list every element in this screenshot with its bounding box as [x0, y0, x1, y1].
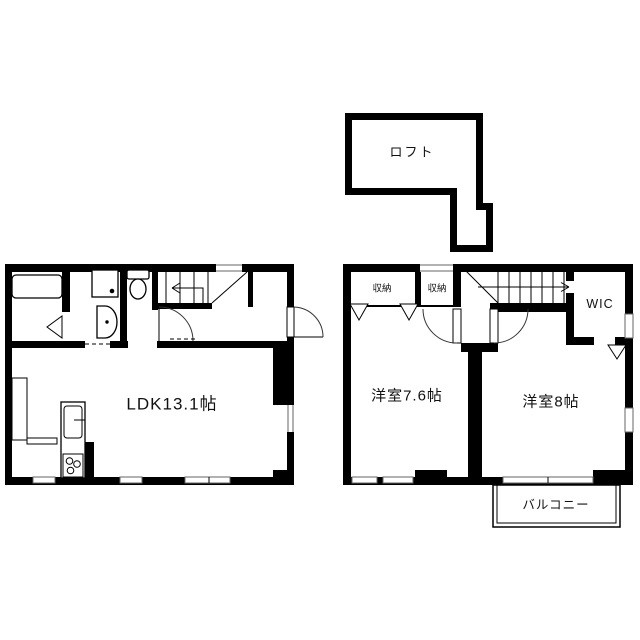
staircase-2f — [463, 268, 569, 303]
floorplan-drawing — [0, 0, 640, 640]
kitchen-unit — [61, 402, 85, 478]
bath-folding-door — [47, 316, 62, 338]
closet-right-label: 収納 — [427, 284, 446, 294]
wic-folding-door — [608, 345, 626, 359]
floorplan-canvas: ロフト LDK13.1帖 収納 収納 WIC 洋室7.6帖 洋室8帖 バルコニー — [0, 0, 640, 640]
entrance-door-leaf — [287, 307, 294, 337]
toilet-bowl — [130, 279, 146, 299]
door-leaf — [453, 309, 461, 343]
door-leaf — [490, 309, 498, 343]
washer-drain — [110, 289, 115, 294]
first-floor-doors — [47, 307, 323, 344]
counter-return — [27, 438, 57, 444]
staircase-1f — [166, 272, 247, 305]
door-swing-arc — [159, 307, 193, 341]
first-floor-fixtures — [12, 270, 149, 478]
balcony-label: バルコニー — [522, 499, 589, 512]
door-swing-arc — [423, 309, 457, 343]
toilet-tank — [127, 270, 149, 279]
ldk-label: LDK13.1帖 — [126, 396, 217, 413]
washer-pan — [92, 270, 118, 297]
wic-label: WIC — [586, 298, 613, 311]
window — [120, 477, 142, 483]
basin-drain — [105, 320, 108, 323]
bathtub — [12, 275, 62, 298]
closet-folding-door — [350, 304, 368, 320]
door-swing-arc — [494, 309, 528, 343]
counter — [12, 378, 27, 440]
entrance-door-arc — [294, 307, 323, 337]
window — [383, 477, 413, 483]
window — [185, 477, 230, 483]
bedroom-left-label: 洋室7.6帖 — [371, 389, 443, 404]
window — [33, 477, 55, 483]
closet-folding-door — [400, 304, 418, 320]
window — [352, 477, 377, 483]
loft-outline — [345, 113, 493, 252]
bedroom-right-label: 洋室8帖 — [522, 395, 579, 410]
window — [625, 408, 633, 432]
closet-left-label: 収納 — [372, 284, 391, 294]
loft-label: ロフト — [389, 146, 434, 159]
window — [625, 314, 633, 338]
wic-door-opening — [594, 337, 615, 345]
